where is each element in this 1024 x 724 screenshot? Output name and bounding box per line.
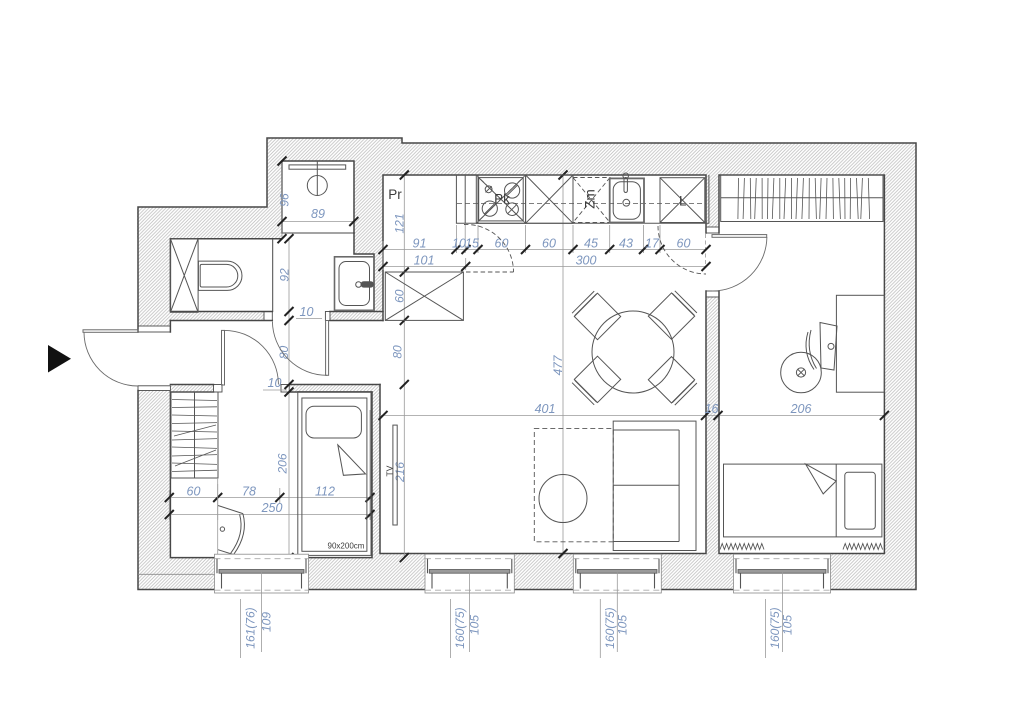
svg-text:60: 60 <box>677 237 691 251</box>
svg-text:80: 80 <box>391 345 405 359</box>
svg-text:17: 17 <box>645 237 660 251</box>
svg-text:105: 105 <box>781 615 795 635</box>
svg-text:161(76): 161(76) <box>244 607 258 648</box>
svg-text:10: 10 <box>452 237 466 251</box>
svg-text:43: 43 <box>619 237 633 251</box>
svg-text:Zm: Zm <box>583 189 598 209</box>
svg-text:160(75): 160(75) <box>453 607 467 648</box>
svg-text:91: 91 <box>413 237 427 251</box>
svg-text:206: 206 <box>275 453 289 474</box>
svg-text:15: 15 <box>465 237 479 251</box>
svg-text:112: 112 <box>315 485 335 499</box>
svg-text:60: 60 <box>542 237 556 251</box>
svg-text:78: 78 <box>242 485 256 499</box>
svg-text:96: 96 <box>278 193 292 207</box>
svg-text:90x200cm: 90x200cm <box>328 542 365 551</box>
svg-text:109: 109 <box>260 612 274 632</box>
svg-text:300: 300 <box>576 254 597 268</box>
svg-text:L: L <box>679 194 687 209</box>
svg-text:477: 477 <box>551 354 565 375</box>
svg-text:105: 105 <box>615 615 629 635</box>
svg-text:Pr: Pr <box>388 187 402 202</box>
svg-text:105: 105 <box>468 615 482 635</box>
svg-text:160(75): 160(75) <box>603 607 617 648</box>
svg-text:92: 92 <box>278 268 292 282</box>
svg-text:216: 216 <box>393 462 407 483</box>
svg-text:45: 45 <box>584 237 598 251</box>
svg-text:206: 206 <box>790 402 812 416</box>
svg-text:121: 121 <box>392 213 406 233</box>
svg-text:101: 101 <box>414 254 435 268</box>
svg-text:10: 10 <box>300 305 314 319</box>
svg-text:Pk: Pk <box>494 192 510 207</box>
svg-text:89: 89 <box>311 207 325 221</box>
svg-text:16: 16 <box>705 402 719 416</box>
svg-text:60: 60 <box>495 237 509 251</box>
svg-text:401: 401 <box>535 402 556 416</box>
svg-text:TV: TV <box>384 465 394 476</box>
svg-text:10: 10 <box>268 376 282 390</box>
svg-text:60: 60 <box>392 289 406 303</box>
svg-text:160(75): 160(75) <box>768 607 782 648</box>
svg-text:250: 250 <box>261 501 283 515</box>
svg-text:60: 60 <box>187 485 201 499</box>
